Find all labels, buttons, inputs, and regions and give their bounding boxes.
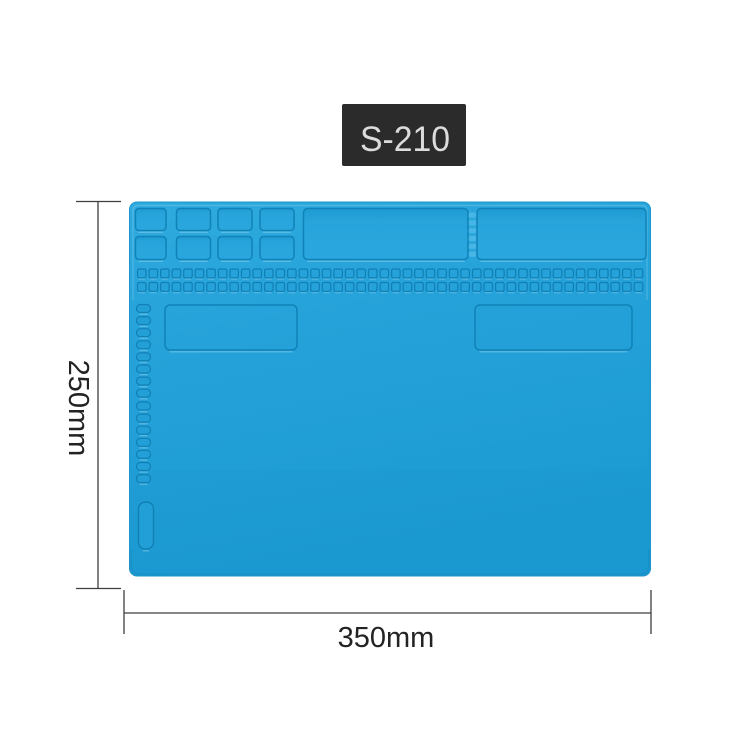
svg-text:250mm: 250mm <box>62 360 94 457</box>
svg-text:S-210: S-210 <box>360 120 450 159</box>
svg-text:350mm: 350mm <box>338 622 435 654</box>
